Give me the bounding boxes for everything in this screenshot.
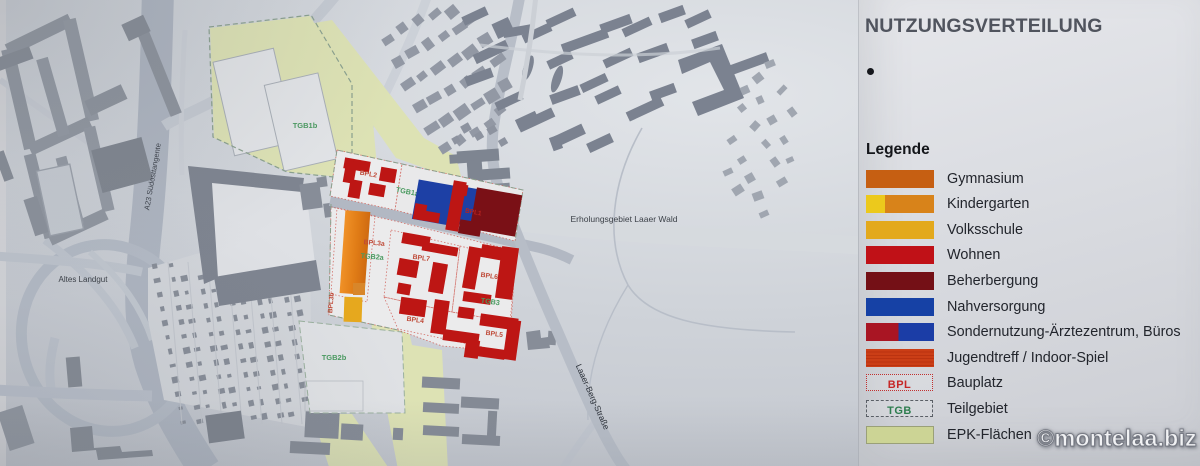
svg-text:Erholungsgebiet Laaer Wald: Erholungsgebiet Laaer Wald (571, 214, 678, 224)
svg-text:Altes Landgut: Altes Landgut (59, 275, 109, 284)
